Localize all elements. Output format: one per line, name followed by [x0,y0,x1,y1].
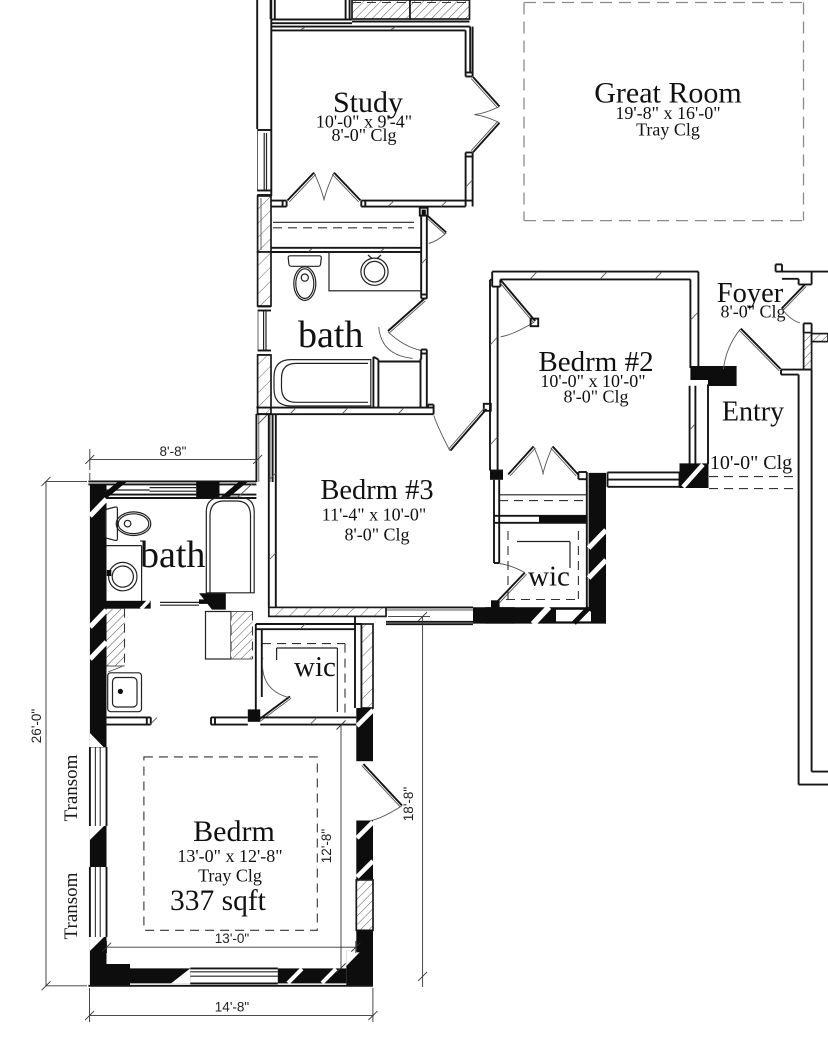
svg-text:8'-0" Clg: 8'-0" Clg [331,125,396,145]
svg-text:12'-8": 12'-8" [319,829,334,864]
svg-text:bath: bath [298,314,363,356]
svg-text:Transom: Transom [61,872,82,939]
svg-text:14'-8": 14'-8" [215,1000,250,1015]
svg-text:26'-0": 26'-0" [29,709,44,744]
svg-text:Transom: Transom [61,754,82,821]
svg-text:wic: wic [528,561,570,593]
svg-text:18'-8": 18'-8" [401,787,416,822]
svg-text:8'-0" Clg: 8'-0" Clg [344,525,409,545]
svg-text:13'-0" x 12'-8": 13'-0" x 12'-8" [177,846,282,866]
svg-text:8'-0" Clg: 8'-0" Clg [720,302,785,322]
svg-text:Entry: Entry [722,397,784,428]
svg-text:Bedrm: Bedrm [193,815,275,848]
svg-text:8'-0" Clg: 8'-0" Clg [563,387,628,407]
svg-text:Bedrm #3: Bedrm #3 [320,475,433,506]
svg-text:bath: bath [140,534,205,576]
svg-text:8'-8": 8'-8" [160,444,187,459]
svg-text:Tray Clg: Tray Clg [198,866,262,886]
svg-text:Tray Clg: Tray Clg [636,120,700,140]
svg-text:10'-0" Clg: 10'-0" Clg [710,452,792,474]
svg-text:wic: wic [294,651,336,683]
svg-text:13'-0": 13'-0" [215,931,250,946]
svg-text:337 sqft: 337 sqft [170,885,267,917]
svg-text:11'-4" x 10'-0": 11'-4" x 10'-0" [322,505,427,525]
